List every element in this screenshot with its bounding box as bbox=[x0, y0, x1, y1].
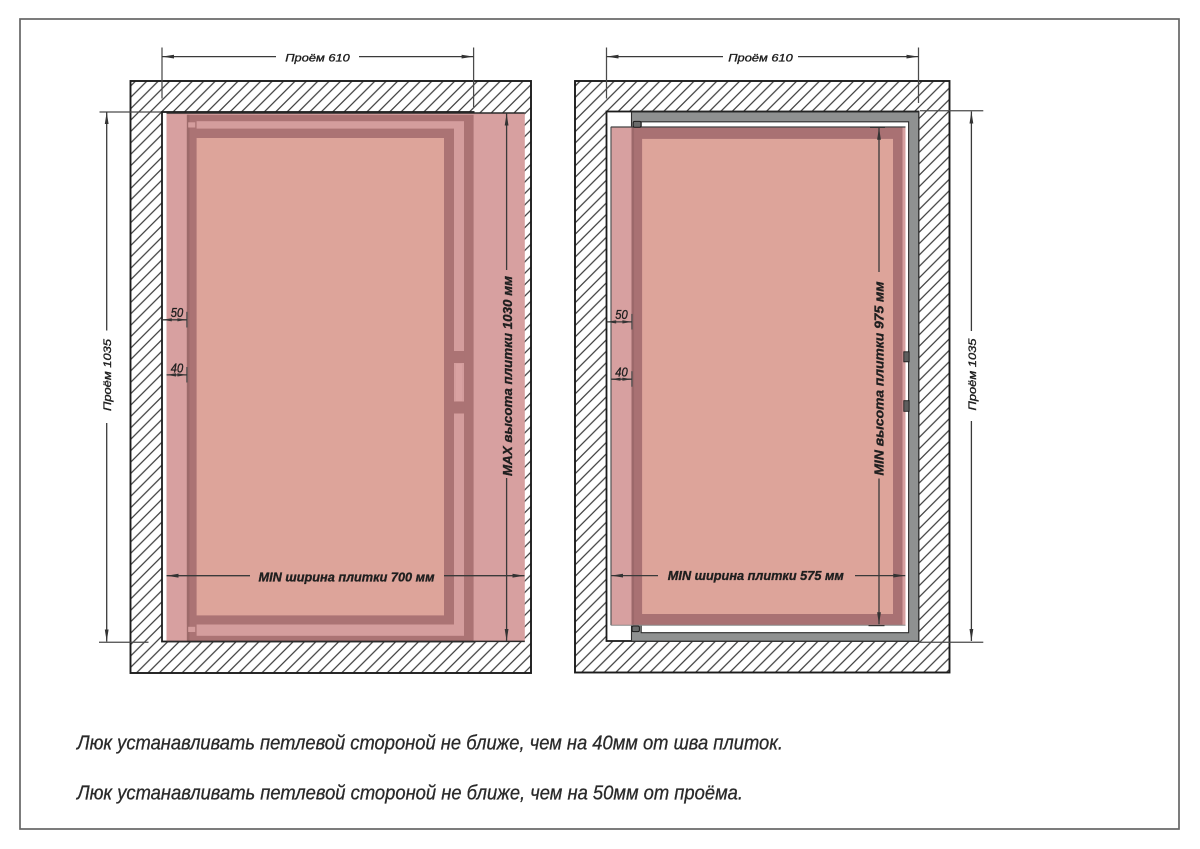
svg-text:Проём 610: Проём 610 bbox=[728, 53, 794, 65]
svg-text:MIN ширина плитки 700 мм: MIN ширина плитки 700 мм bbox=[259, 570, 435, 585]
svg-text:40: 40 bbox=[171, 361, 183, 375]
svg-text:40: 40 bbox=[615, 366, 627, 380]
svg-text:Проём 610: Проём 610 bbox=[285, 53, 351, 65]
svg-text:MIN ширина плитки 575 мм: MIN ширина плитки 575 мм bbox=[668, 568, 844, 583]
svg-text:MIN высота плитки 975 мм: MIN высота плитки 975 мм bbox=[872, 281, 887, 475]
svg-text:Люк устанавливать петлевой сто: Люк устанавливать петлевой стороной не б… bbox=[75, 782, 743, 805]
svg-text:Люк устанавливать петлевой сто: Люк устанавливать петлевой стороной не б… bbox=[75, 731, 783, 754]
svg-text:Проём 1035: Проём 1035 bbox=[102, 338, 114, 411]
svg-text:50: 50 bbox=[171, 306, 183, 320]
svg-text:50: 50 bbox=[615, 308, 627, 322]
svg-text:Проём 1035: Проём 1035 bbox=[967, 337, 979, 410]
svg-text:MAX высота плитки 1030 мм: MAX высота плитки 1030 мм bbox=[500, 276, 515, 476]
